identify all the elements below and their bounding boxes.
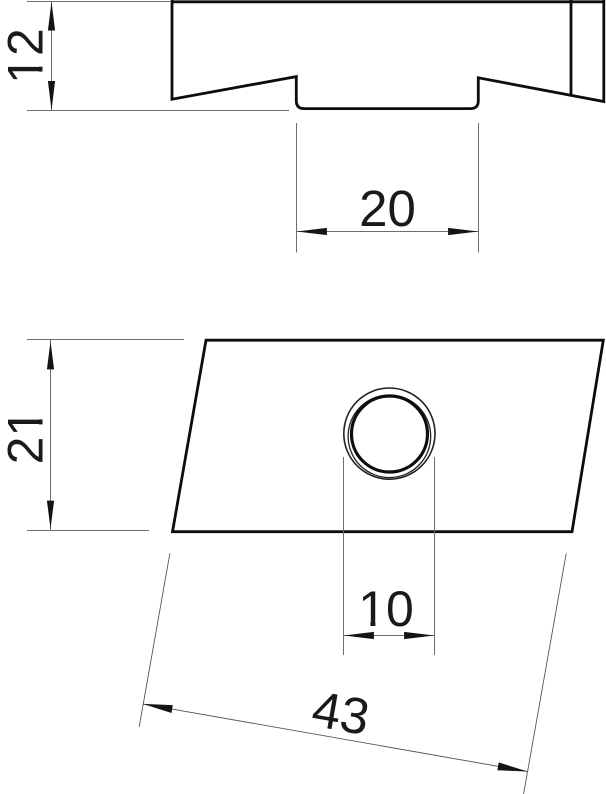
- svg-text:12: 12: [0, 28, 54, 84]
- svg-text:10: 10: [358, 581, 414, 637]
- svg-text:21: 21: [0, 409, 54, 465]
- svg-text:43: 43: [308, 680, 374, 746]
- svg-text:20: 20: [359, 180, 416, 237]
